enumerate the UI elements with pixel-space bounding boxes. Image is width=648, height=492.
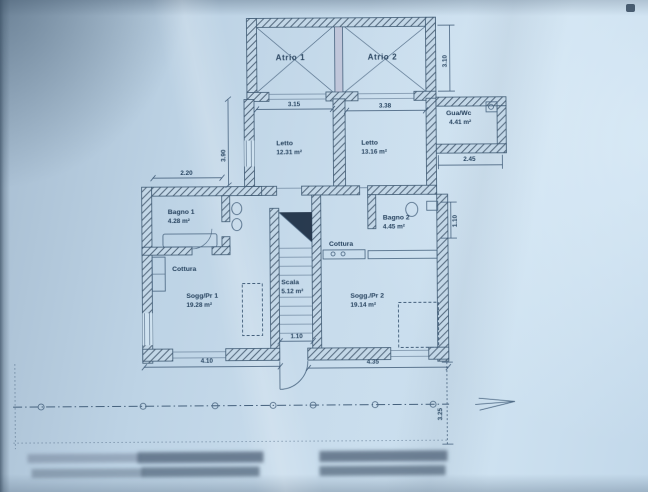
dim-left-height: 3.90 bbox=[220, 149, 227, 162]
label-atrio2: Atrio 2 bbox=[368, 52, 398, 61]
label-cottura-right: Cottura bbox=[329, 241, 353, 248]
floor-plan-drawing: Atrio 1 Atrio 2 Letto 12.31 m² Letto 13.… bbox=[0, 0, 648, 492]
area-scala: 5.12 m² bbox=[281, 288, 303, 295]
label-bagno2: Bagno 2 bbox=[383, 214, 410, 221]
photo-of-floor-plan: Atrio 1 Atrio 2 Letto 12.31 m² Letto 13.… bbox=[0, 0, 648, 492]
label-atrio1: Atrio 1 bbox=[276, 53, 306, 62]
area-sogg1: 19.28 m² bbox=[186, 302, 212, 309]
area-bagno2: 4.45 m² bbox=[383, 223, 405, 230]
label-sogg2: Sogg./Pr 2 bbox=[350, 293, 384, 300]
dimension-lines bbox=[139, 25, 504, 447]
label-scala: Scala bbox=[281, 279, 299, 286]
label-guawc: Gua/Wc bbox=[446, 110, 472, 117]
area-bagno1: 4.28 m² bbox=[168, 218, 190, 225]
label-sogg1: Sogg/Pr 1 bbox=[186, 293, 218, 300]
label-cottura-left: Cottura bbox=[172, 266, 196, 273]
dim-atrio-height: 3.10 bbox=[442, 55, 449, 68]
dim-sogg2-width: 4.35 bbox=[367, 359, 380, 366]
dim-guawc-width: 2.45 bbox=[463, 156, 476, 163]
dim-stair-width: 1.10 bbox=[290, 333, 303, 340]
direction-arrow-icon bbox=[475, 395, 516, 410]
label-letto1: Letto bbox=[276, 140, 293, 147]
dim-front-depth: 3.25 bbox=[437, 408, 444, 421]
entrance-door-swing bbox=[280, 361, 308, 389]
dim-sogg1-width: 4.10 bbox=[201, 358, 214, 365]
area-letto1: 12.31 m² bbox=[276, 149, 302, 156]
staircase bbox=[279, 212, 313, 333]
pencil-smudge-bands bbox=[27, 450, 447, 478]
site-lines bbox=[13, 361, 450, 478]
dim-right-offset: 1.10 bbox=[452, 214, 459, 227]
walls bbox=[140, 17, 507, 364]
label-letto2: Letto bbox=[361, 140, 378, 147]
area-sogg2: 19.14 m² bbox=[350, 302, 376, 309]
dim-bagno1-width: 2.20 bbox=[180, 170, 193, 177]
area-letto2: 13.16 m² bbox=[361, 149, 387, 156]
dim-letto2-width: 3.38 bbox=[379, 103, 392, 110]
area-guawc: 4.41 m² bbox=[449, 119, 471, 126]
dim-letto1-width: 3.15 bbox=[288, 101, 301, 108]
label-bagno1: Bagno 1 bbox=[168, 209, 195, 216]
